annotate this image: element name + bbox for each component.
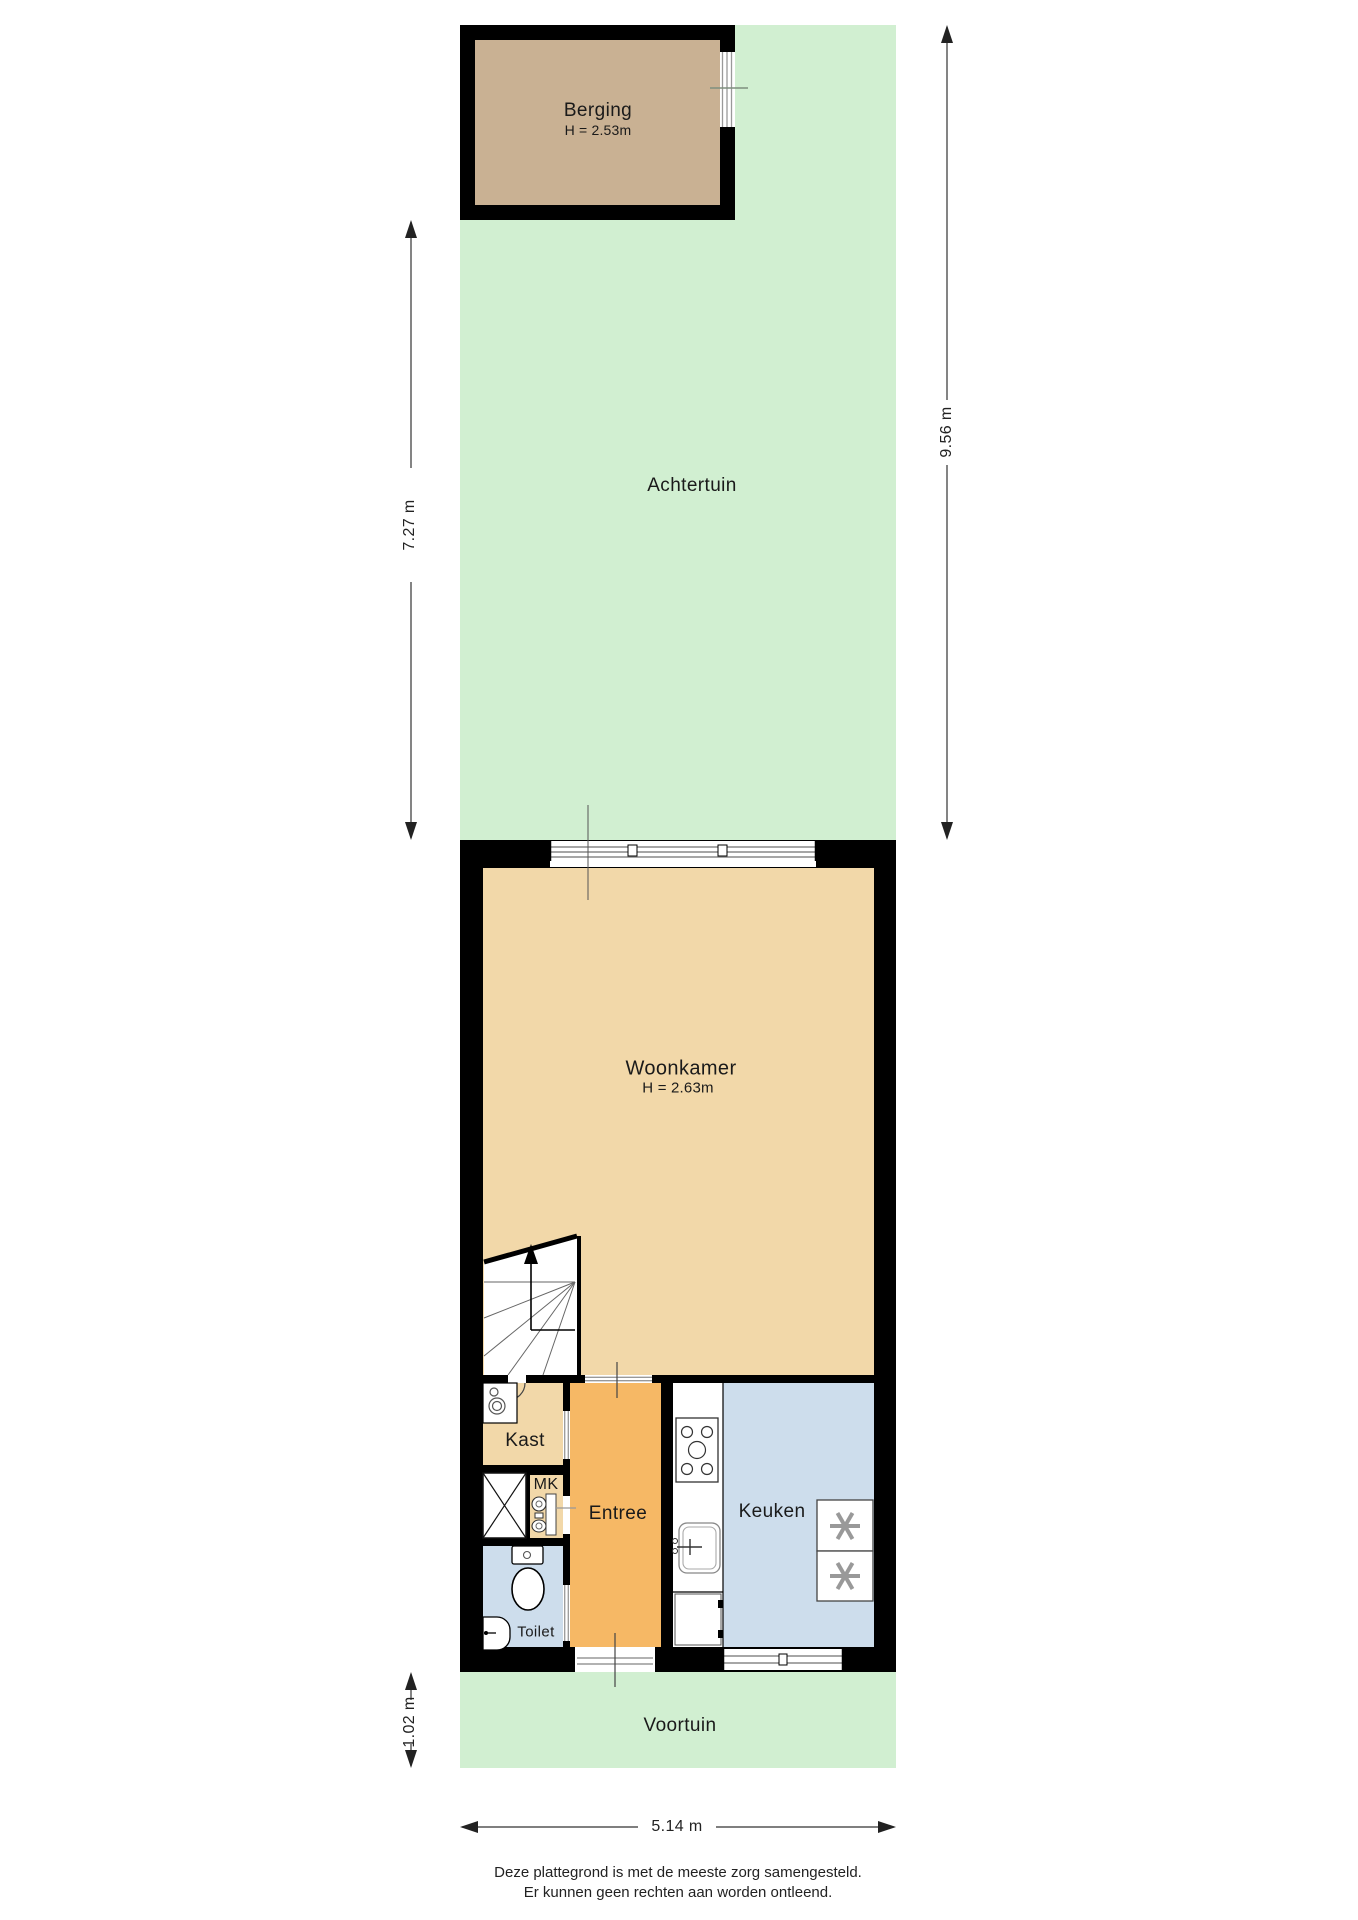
toilet-icon bbox=[512, 1546, 544, 1610]
appliance-under-counter bbox=[675, 1594, 721, 1645]
kast-label: Kast bbox=[505, 1430, 545, 1452]
berging-door bbox=[710, 52, 748, 127]
sink-icon bbox=[673, 1523, 721, 1573]
keuken-label: Keuken bbox=[739, 1501, 806, 1523]
woonkamer-entree-door bbox=[585, 1362, 652, 1398]
berging-height-label: H = 2.53m bbox=[565, 122, 632, 138]
woonkamer-label: Woonkamer bbox=[625, 1058, 736, 1081]
meter-icons bbox=[532, 1497, 546, 1532]
dryer-icon bbox=[817, 1551, 873, 1601]
void-x-box bbox=[483, 1473, 526, 1538]
dim-plot-width: 5.14 m bbox=[651, 1818, 702, 1836]
disclaimer-line-2: Er kunnen geen rechten aan worden ontlee… bbox=[524, 1884, 833, 1901]
plan-lineart bbox=[0, 0, 1358, 1920]
mk-label: MK bbox=[534, 1476, 559, 1494]
floorplan: Berging H = 2.53m Achtertuin Woonkamer H… bbox=[0, 0, 1358, 1920]
stove-icon bbox=[676, 1418, 718, 1482]
berging-label: Berging bbox=[564, 100, 632, 122]
hand-basin-icon bbox=[483, 1617, 510, 1650]
mk-door bbox=[546, 1494, 576, 1535]
dim-total-height: 9.56 m bbox=[938, 406, 956, 457]
toilet-label: Toilet bbox=[517, 1624, 554, 1641]
rear-window bbox=[550, 805, 816, 900]
voortuin-label: Voortuin bbox=[644, 1715, 717, 1737]
kitchen-window bbox=[723, 1649, 843, 1670]
dim-back-garden-height: 7.27 m bbox=[401, 499, 419, 550]
toilet-door bbox=[563, 1585, 570, 1641]
dim-front-garden-height: 1.02 m bbox=[401, 1696, 419, 1747]
washer-icon bbox=[817, 1500, 873, 1551]
entree-label: Entree bbox=[589, 1503, 647, 1525]
front-door bbox=[575, 1633, 655, 1687]
kast-entree-door bbox=[563, 1411, 570, 1459]
achtertuin-label: Achtertuin bbox=[647, 475, 737, 497]
boiler-icon bbox=[483, 1383, 517, 1423]
staircase bbox=[484, 1236, 581, 1375]
disclaimer-line-1: Deze plattegrond is met de meeste zorg s… bbox=[494, 1864, 862, 1881]
woonkamer-height-label: H = 2.63m bbox=[642, 1080, 713, 1097]
